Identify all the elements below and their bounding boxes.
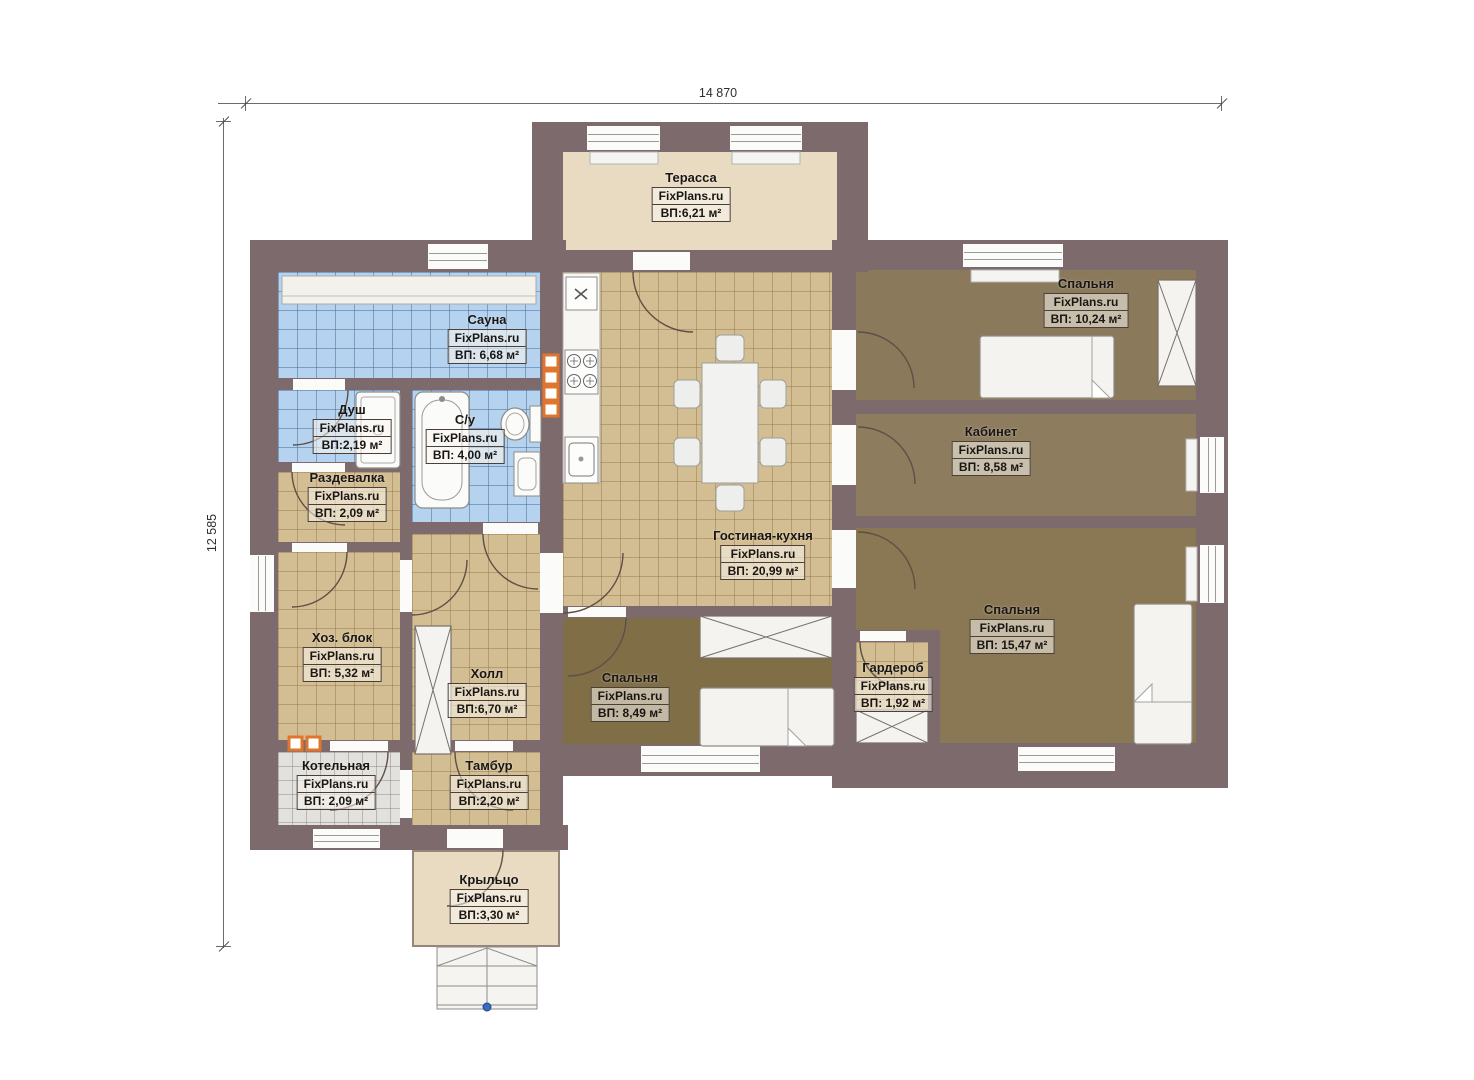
wall-spine-left: [540, 240, 563, 825]
wall-left-outer: [250, 240, 278, 850]
watermark: FixPlans.ru: [298, 776, 375, 792]
watermark: FixPlans.ru: [722, 546, 805, 562]
room-name: Гостиная-кухня: [713, 528, 813, 543]
window-office: [1200, 437, 1224, 493]
room-label-terrace: Терасса FixPlans.ruВП:6,21 м²: [652, 170, 731, 222]
room-label-shower: Душ FixPlans.ruВП:2,19 м²: [313, 402, 392, 454]
wall-kitchen-top: [563, 250, 837, 272]
door-opening-wardrobe: [860, 631, 906, 641]
room-label-bedroom3: Спальня FixPlans.ruВП: 8,49 м²: [591, 670, 670, 722]
wall-leftwing-bottom: [250, 825, 568, 850]
watermark: FixPlans.ru: [1045, 294, 1128, 310]
watermark: FixPlans.ru: [653, 188, 730, 204]
window-bedroom2-right: [1200, 545, 1224, 603]
window-boiler: [313, 829, 380, 848]
room-name: Крыльцо: [450, 872, 529, 887]
wall-terrace-top: [532, 122, 868, 152]
room-label-bedroom1: Спальня FixPlans.ruВП: 10,24 м²: [1044, 276, 1129, 328]
watermark: FixPlans.ru: [304, 648, 381, 664]
dimension-left-value: 12 585: [205, 514, 219, 552]
room-name: Душ: [313, 402, 392, 417]
room-label-utility: Хоз. блок FixPlans.ruВП: 5,32 м²: [303, 630, 382, 682]
room-label-office: Кабинет FixPlans.ruВП: 8,58 м²: [952, 424, 1031, 476]
wall-bedroom1-office: [856, 400, 1196, 414]
watermark: FixPlans.ru: [451, 890, 528, 906]
floor-bedroom1: [856, 270, 1196, 400]
room-label-bathroom: С/у FixPlans.ruВП: 4,00 м²: [426, 412, 505, 464]
room-area: ВП: 5,32 м²: [304, 664, 381, 681]
room-name: Терасса: [652, 170, 731, 185]
window-utility: [250, 555, 274, 612]
door-opening-sauna-shower: [293, 379, 345, 390]
room-name: Спальня: [1044, 276, 1129, 291]
room-label-vestibule: Тамбур FixPlans.ruВП:2,20 м²: [450, 758, 529, 810]
wall-right-outer: [1196, 240, 1228, 788]
room-area: ВП:3,30 м²: [451, 906, 528, 923]
room-name: Кабинет: [952, 424, 1031, 439]
room-area: ВП: 8,58 м²: [953, 458, 1030, 475]
window-bedroom2-bottom: [1018, 747, 1115, 771]
reference-dot: [483, 1003, 491, 1011]
room-name: Холл: [448, 666, 527, 681]
watermark: FixPlans.ru: [592, 688, 669, 704]
room-area: ВП: 8,49 м²: [592, 704, 669, 721]
room-label-bedroom2: Спальня FixPlans.ruВП: 15,47 м²: [970, 602, 1055, 654]
door-opening-bathroom: [483, 523, 538, 534]
watermark: FixPlans.ru: [314, 420, 391, 436]
door-opening-boiler-vestibule: [400, 770, 412, 818]
porch-steps-icon: [437, 947, 537, 1009]
watermark: FixPlans.ru: [427, 430, 504, 446]
room-area: ВП: 20,99 м²: [722, 562, 805, 579]
window-bedroom1: [963, 244, 1063, 267]
room-name: Сауна: [448, 312, 527, 327]
room-area: ВП: 4,00 м²: [427, 446, 504, 463]
room-label-porch: Крыльцо FixPlans.ruВП:3,30 м²: [450, 872, 529, 924]
room-label-wardrobe: Гардероб FixPlans.ruВП: 1,92 м²: [854, 660, 933, 712]
window-sauna: [428, 244, 488, 269]
room-area: ВП:6,70 м²: [449, 700, 526, 717]
room-area: ВП:2,20 м²: [451, 792, 528, 809]
door-opening-boiler: [330, 741, 388, 751]
watermark: FixPlans.ru: [971, 620, 1054, 636]
room-label-living-kitchen: Гостиная-кухня FixPlans.ruВП: 20,99 м²: [713, 528, 813, 580]
room-area: ВП: 15,47 м²: [971, 636, 1054, 653]
room-area: ВП: 2,09 м²: [309, 504, 386, 521]
room-name: Котельная: [297, 758, 376, 773]
door-opening-utility-hall: [400, 560, 412, 612]
floor-plan: Терасса FixPlans.ruВП:6,21 м² Сауна FixP…: [0, 0, 1474, 1080]
window-terrace-2: [730, 126, 802, 150]
room-label-hall: Холл FixPlans.ruВП:6,70 м²: [448, 666, 527, 718]
room-name: Тамбур: [450, 758, 529, 773]
room-name: Раздевалка: [308, 470, 387, 485]
watermark: FixPlans.ru: [451, 776, 528, 792]
wall-leftwing-top: [250, 240, 566, 272]
wall-shower-bath: [400, 390, 412, 530]
door-opening-bedroom2: [832, 530, 856, 588]
room-label-dressing: Раздевалка FixPlans.ruВП: 2,09 м²: [308, 470, 387, 522]
door-opening-terrace: [633, 252, 690, 270]
watermark: FixPlans.ru: [309, 488, 386, 504]
door-opening-dressing-utility: [292, 543, 347, 552]
watermark: FixPlans.ru: [855, 678, 932, 694]
room-label-boiler: Котельная FixPlans.ruВП: 2,09 м²: [297, 758, 376, 810]
door-opening-vestibule: [455, 741, 513, 751]
room-name: Спальня: [591, 670, 670, 685]
room-area: ВП: 6,68 м²: [449, 346, 526, 363]
door-opening-office: [832, 425, 856, 485]
door-opening-bedroom1: [832, 330, 856, 390]
room-label-sauna: Сауна FixPlans.ruВП: 6,68 м²: [448, 312, 527, 364]
room-name: Хоз. блок: [303, 630, 382, 645]
door-opening-porch: [447, 829, 503, 848]
watermark: FixPlans.ru: [953, 442, 1030, 458]
dimension-top-value: 14 870: [699, 86, 737, 100]
room-area: ВП:2,19 м²: [314, 436, 391, 453]
room-name: Гардероб: [854, 660, 933, 675]
door-opening-hall-kitchen: [540, 553, 563, 613]
room-area: ВП: 10,24 м²: [1045, 310, 1128, 327]
watermark: FixPlans.ru: [449, 684, 526, 700]
wall-office-bedroom2: [856, 516, 1196, 528]
room-area: ВП: 2,09 м²: [298, 792, 375, 809]
room-name: С/у: [426, 412, 505, 427]
room-area: ВП: 1,92 м²: [855, 694, 932, 711]
window-terrace-1: [587, 126, 660, 150]
watermark: FixPlans.ru: [449, 330, 526, 346]
room-name: Спальня: [970, 602, 1055, 617]
window-bedroom3: [641, 746, 760, 772]
room-area: ВП:6,21 м²: [653, 204, 730, 221]
door-opening-bedroom3: [568, 607, 626, 617]
